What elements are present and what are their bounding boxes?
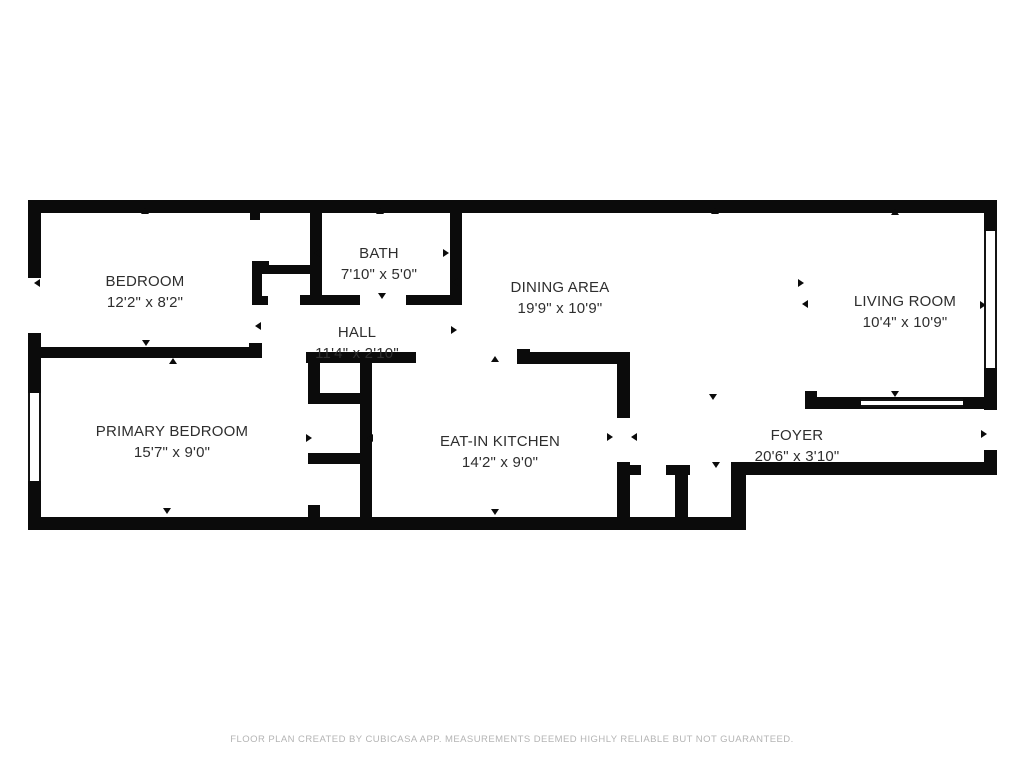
opening-marker-right [443, 249, 449, 257]
opening-marker-right [798, 279, 804, 287]
opening-marker-right [980, 301, 986, 309]
wall-bedroom-divider-cap [249, 343, 262, 358]
room-dimensions: 11'4" x 2'10" [315, 343, 399, 364]
room-name: PRIMARY BEDROOM [96, 421, 248, 442]
room-name: BEDROOM [106, 271, 185, 292]
wall-bedroom-divider [28, 347, 252, 358]
opening-marker-down [712, 462, 720, 468]
opening-marker-down [491, 509, 499, 515]
room-name: HALL [315, 322, 399, 343]
footer-disclaimer: FLOOR PLAN CREATED BY CUBICASA APP. MEAS… [230, 734, 793, 745]
wall-bath-bottom-right [406, 295, 462, 305]
opening-marker-left [34, 279, 40, 287]
room-label-hall: HALL11'4" x 2'10" [315, 322, 399, 364]
wall-foyer-closet-right [731, 462, 746, 530]
wall-foyer-bottom-right-cap [984, 450, 997, 475]
wall-top-exterior [28, 200, 997, 213]
wall-living-room-bottom-cap [805, 391, 817, 409]
room-label-bedroom: BEDROOM12'2" x 8'2" [106, 271, 185, 313]
left-window [28, 393, 41, 481]
room-label-living-room: LIVING ROOM10'4" x 10'9" [854, 291, 956, 333]
wall-foyer-closet-divider [675, 465, 688, 530]
room-dimensions: 14'2" x 9'0" [440, 452, 560, 473]
room-dimensions: 19'9" x 10'9" [511, 298, 610, 319]
room-dimensions: 12'2" x 8'2" [106, 292, 185, 313]
room-label-foyer: FOYER20'6" x 3'10" [755, 425, 840, 467]
floor-plan: BEDROOM12'2" x 8'2"BATH7'10" x 5'0"HALL1… [0, 0, 1024, 768]
wall-kitchen-top-left-cap [517, 349, 530, 364]
wall-bedroom-closet-cap-top [252, 261, 269, 270]
opening-marker-down [709, 394, 717, 400]
wall-closet-column-divider-b [308, 453, 372, 464]
room-label-eat-in-kitchen: EAT-IN KITCHEN14'2" x 9'0" [440, 431, 560, 473]
opening-marker-left [452, 278, 458, 286]
wall-foyer-closet-stub-left [617, 465, 641, 475]
opening-marker-down [163, 508, 171, 514]
room-name: FOYER [755, 425, 840, 446]
wall-left-exterior-upper [28, 200, 41, 278]
opening-marker-up [491, 356, 499, 362]
room-dimensions: 10'4" x 10'9" [854, 312, 956, 333]
opening-marker-down [378, 293, 386, 299]
room-name: BATH [341, 243, 417, 264]
room-name: DINING AREA [511, 277, 610, 298]
opening-marker-right [981, 430, 987, 438]
wall-bedroom-closet-cap-bottom [252, 296, 268, 305]
wall-top-wall-stub [250, 213, 260, 220]
opening-marker-down [142, 340, 150, 346]
room-label-primary-bedroom: PRIMARY BEDROOM15'7" x 9'0" [96, 421, 248, 463]
opening-marker-down [891, 391, 899, 397]
wall-kitchen-top [517, 352, 630, 364]
opening-marker-up [891, 209, 899, 215]
room-name: LIVING ROOM [854, 291, 956, 312]
opening-marker-left [255, 322, 261, 330]
wall-kitchen-right-upper [617, 352, 630, 418]
wall-closet-column-left-lower [308, 505, 320, 518]
wall-bath-right [450, 200, 462, 305]
opening-marker-left [314, 249, 320, 257]
opening-marker-right [306, 434, 312, 442]
opening-marker-up [141, 208, 149, 214]
room-dimensions: 7'10" x 5'0" [341, 264, 417, 285]
wall-left-exterior-mid [28, 333, 41, 395]
room-label-bath: BATH7'10" x 5'0" [341, 243, 417, 285]
room-dimensions: 15'7" x 9'0" [96, 442, 248, 463]
room-name: EAT-IN KITCHEN [440, 431, 560, 452]
wall-bottom-exterior [28, 517, 746, 530]
opening-marker-left [631, 433, 637, 441]
opening-marker-right [451, 326, 457, 334]
right-window [984, 231, 997, 368]
opening-marker-left [802, 300, 808, 308]
wall-bath-bottom-left [300, 295, 360, 305]
opening-marker-left [367, 434, 373, 442]
opening-marker-up [376, 208, 384, 214]
opening-marker-up [169, 358, 177, 364]
room-dimensions: 20'6" x 3'10" [755, 446, 840, 467]
opening-marker-right [607, 433, 613, 441]
opening-marker-up [711, 208, 719, 214]
wall-right-exterior-upper [984, 200, 997, 231]
room-label-dining-area: DINING AREA19'9" x 10'9" [511, 277, 610, 319]
living-room-window [861, 399, 963, 407]
wall-closet-column-divider-a [308, 393, 372, 404]
